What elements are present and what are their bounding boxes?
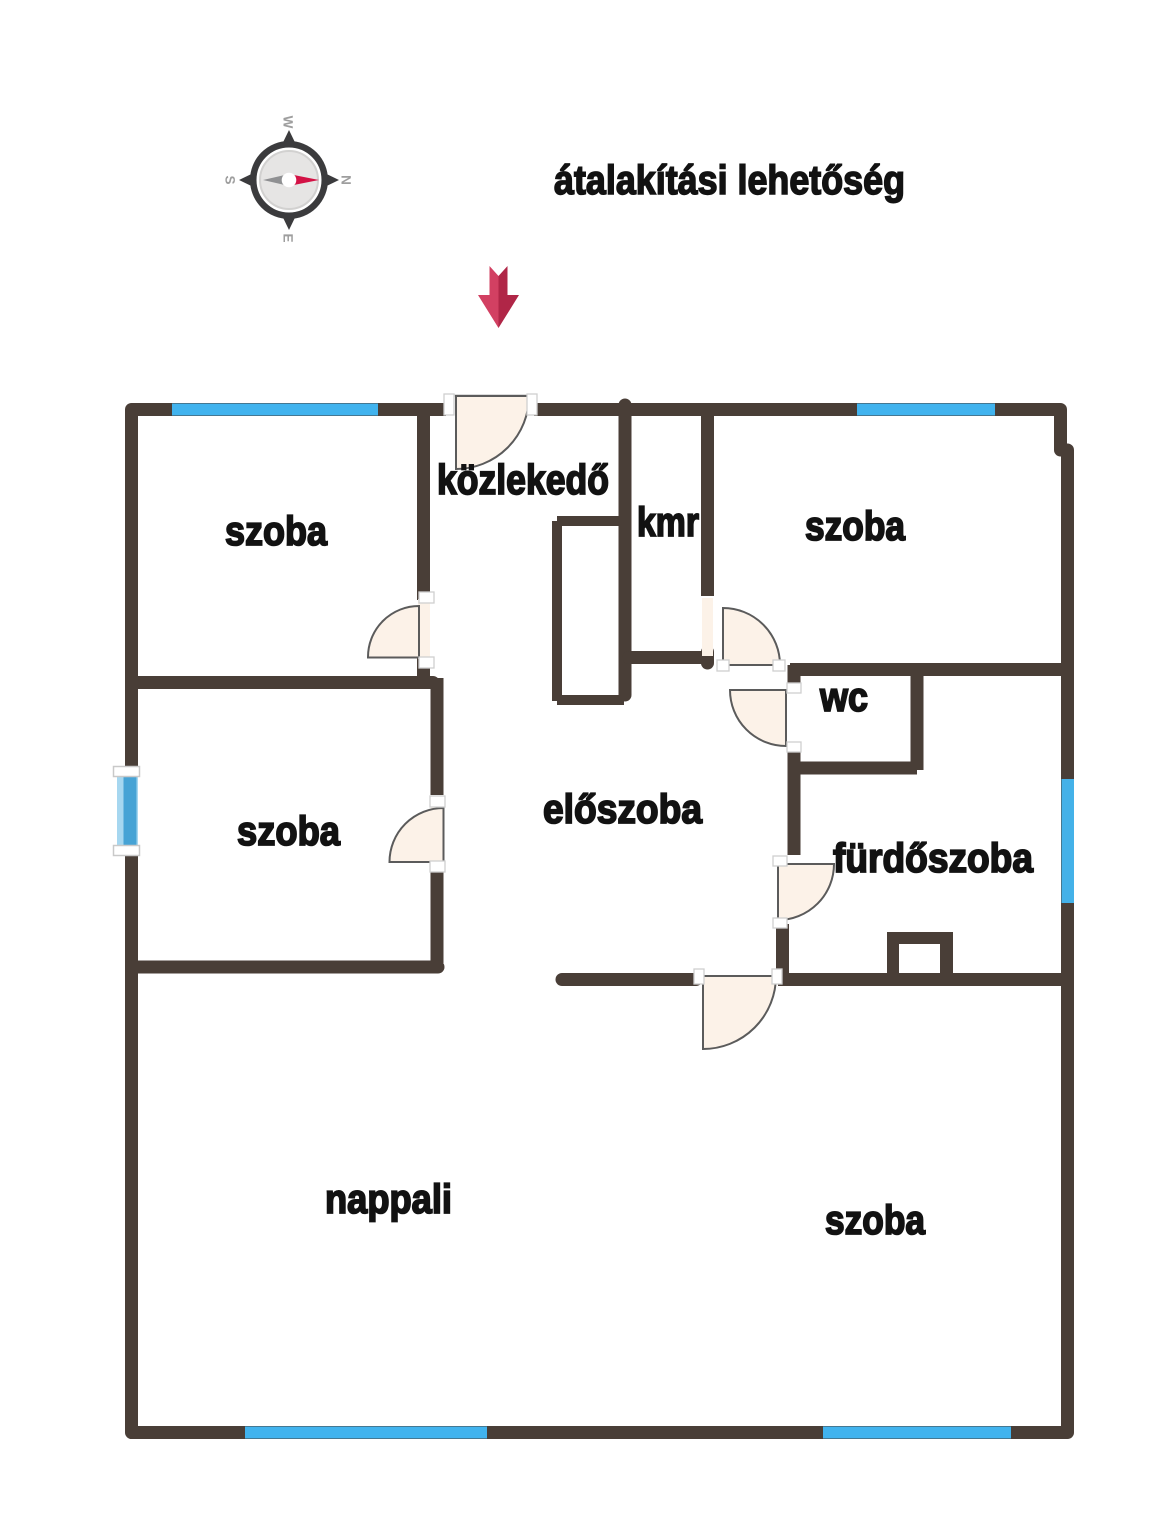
svg-text:N: N	[339, 175, 354, 185]
svg-text:szoba: szoba	[805, 503, 906, 549]
svg-text:nappali: nappali	[325, 1176, 452, 1222]
svg-text:S: S	[223, 175, 238, 184]
svg-text:W: W	[281, 116, 296, 129]
svg-text:átalakítási lehetőség: átalakítási lehetőség	[554, 157, 905, 203]
svg-text:szoba: szoba	[225, 508, 328, 554]
svg-text:közlekedő: közlekedő	[437, 456, 609, 503]
svg-text:előszoba: előszoba	[543, 786, 703, 832]
svg-text:fürdőszoba: fürdőszoba	[833, 835, 1034, 881]
svg-text:E: E	[281, 233, 296, 242]
svg-text:szoba: szoba	[237, 808, 341, 854]
svg-text:szoba: szoba	[825, 1197, 926, 1243]
svg-text:kmr: kmr	[637, 499, 699, 545]
svg-text:wc: wc	[819, 674, 868, 720]
